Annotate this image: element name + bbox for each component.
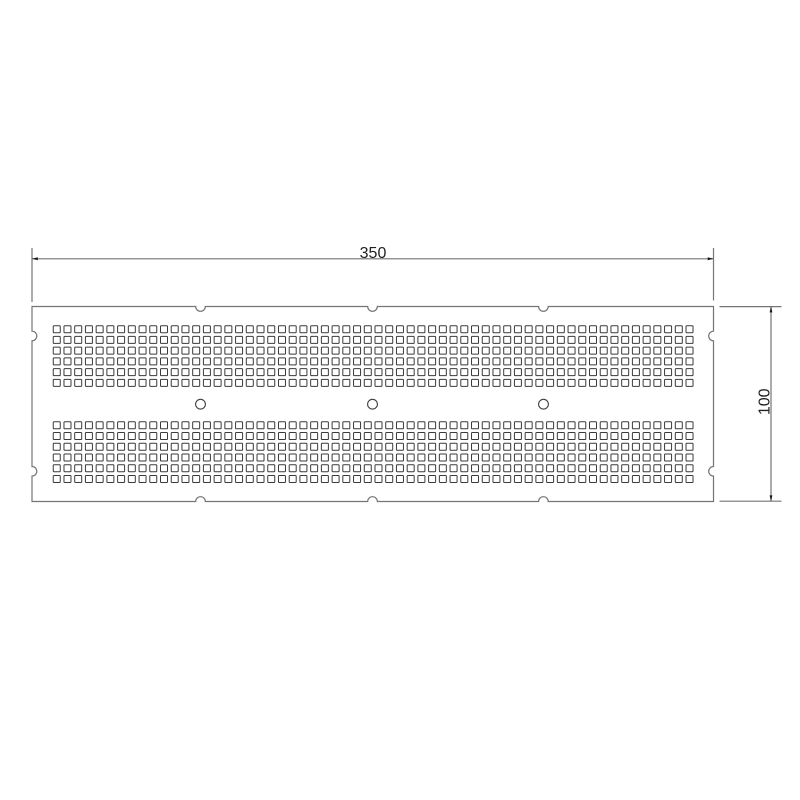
svg-text:350: 350 [360, 245, 387, 262]
svg-text:100: 100 [756, 388, 773, 415]
